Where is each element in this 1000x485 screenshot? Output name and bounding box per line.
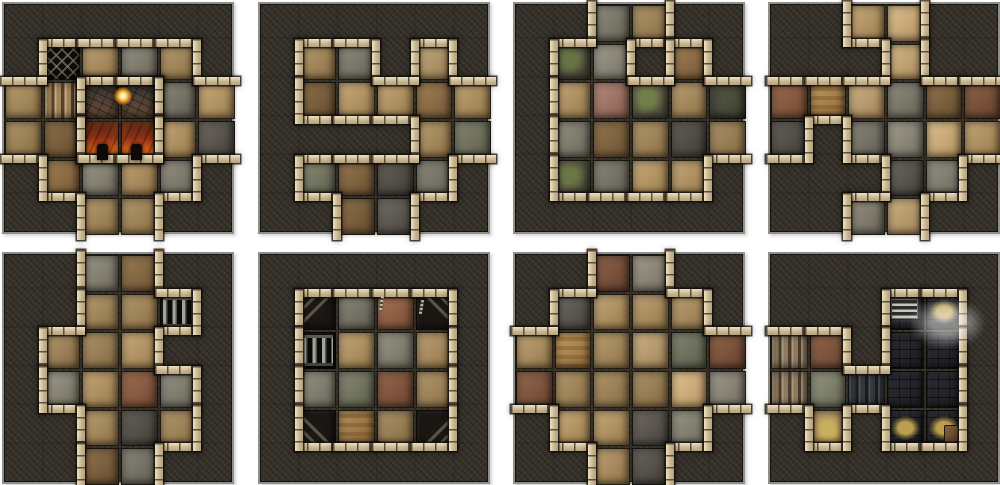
dungeon-wall-segment: [959, 405, 967, 452]
dark-gray-floor: [377, 198, 414, 235]
door-icon: [97, 144, 108, 160]
tan-stone-floor: [555, 82, 592, 119]
brown-floor: [121, 255, 158, 292]
gray-floor: [555, 121, 592, 158]
red-brown-floor: [516, 371, 553, 408]
brown-floor: [593, 121, 630, 158]
dark-gray-floor: [377, 160, 414, 197]
gray-green-floor: [300, 160, 337, 197]
tan-stone-floor: [632, 5, 669, 42]
mossy-floor: [555, 160, 592, 197]
gray-floor: [160, 371, 197, 408]
light-tan-floor: [926, 121, 963, 158]
tan-stone-floor: [82, 294, 119, 331]
pink-stone-floor: [593, 82, 630, 119]
tan-stone-floor: [709, 121, 746, 158]
gray-floor: [593, 5, 630, 42]
tile-crossroads: [768, 2, 1000, 234]
corner-chevron-steps: [416, 410, 453, 447]
gray-floor: [338, 294, 375, 331]
tan-stone-floor: [44, 332, 81, 369]
dungeon-wall-segment: [704, 77, 751, 85]
tile-barred-cell-corridor: [2, 252, 234, 484]
brown-floor: [44, 121, 81, 158]
tile-sealed-prison-room: [258, 252, 490, 484]
dark-gray-floor: [771, 121, 808, 158]
tan-stone-floor: [5, 121, 42, 158]
tan-stone-floor: [555, 371, 592, 408]
red-brown-floor: [709, 332, 746, 369]
stone-stairs: [771, 371, 808, 408]
red-brown-floor: [377, 371, 414, 408]
tan-stone-floor: [593, 410, 630, 447]
red-brown-floor: [593, 255, 630, 292]
brown-floor: [416, 82, 453, 119]
tile-overgrown-hall: [513, 2, 745, 234]
tan-stone-floor: [377, 410, 414, 447]
tan-stone-floor: [338, 332, 375, 369]
dungeon-wall-segment: [449, 155, 457, 202]
tan-stone-floor: [82, 371, 119, 408]
tan-stone-floor: [377, 82, 414, 119]
dungeon-wall-segment: [295, 155, 303, 202]
dungeon-wall-segment: [550, 155, 558, 202]
dungeon-wall-segment: [959, 155, 967, 202]
tan-stone-floor: [160, 121, 197, 158]
tan-stone-floor: [632, 121, 669, 158]
portcullis-cell: [160, 294, 197, 331]
tan-stone-floor: [632, 160, 669, 197]
dungeon-wall-segment: [704, 155, 712, 202]
dungeon-wall-segment: [959, 77, 1000, 85]
light-tan-floor: [887, 44, 924, 81]
red-brown-floor: [771, 82, 808, 119]
gray-green-floor: [671, 332, 708, 369]
tan-stone-floor: [454, 82, 491, 119]
brown-floor: [300, 82, 337, 119]
dungeon-wall-segment: [882, 405, 890, 452]
barred-grate-cell: [300, 332, 337, 369]
gray-floor: [848, 121, 885, 158]
tan-stone-floor: [632, 371, 669, 408]
gray-floor: [926, 160, 963, 197]
dungeon-wall-segment: [805, 116, 813, 163]
tan-stone-floor: [160, 44, 197, 81]
dark-gray-floor: [121, 410, 158, 447]
scorched-floor: [82, 82, 119, 119]
tan-stone-floor: [593, 448, 630, 485]
tile-furnace-room: [2, 2, 234, 234]
dungeon-wall-segment: [843, 77, 890, 85]
tan-stone-floor: [82, 332, 119, 369]
light-tan-floor: [632, 332, 669, 369]
gray-floor: [709, 371, 746, 408]
dungeon-wall-segment: [666, 443, 674, 485]
tile-great-hall: [513, 252, 745, 484]
gray-floor: [82, 255, 119, 292]
banded-orange-floor: [810, 82, 847, 119]
tan-stone-floor: [964, 121, 1000, 158]
dungeon-tile-sheet: [0, 0, 1000, 485]
dungeon-wall-segment: [449, 405, 457, 452]
tan-stone-floor: [121, 160, 158, 197]
dark-gray-floor: [632, 448, 669, 485]
tile-dark-cellar: [768, 252, 1000, 484]
dark-cellar-floor: [887, 371, 924, 408]
dungeon-wall-segment: [921, 193, 929, 240]
gray-green-floor: [338, 371, 375, 408]
dungeon-wall-segment: [155, 443, 163, 485]
dark-gray-floor: [632, 410, 669, 447]
dungeon-wall-segment: [193, 289, 201, 336]
dungeon-wall-segment: [333, 193, 341, 240]
tan-stone-floor: [82, 410, 119, 447]
dungeon-wall-segment: [372, 77, 419, 85]
gray-floor: [377, 332, 414, 369]
red-brown-floor: [810, 332, 847, 369]
hay-on-dark-floor: [887, 410, 924, 447]
dungeon-wall-segment: [805, 405, 813, 452]
gray-floor: [160, 82, 197, 119]
dungeon-wall-segment: [704, 327, 751, 335]
gray-floor: [887, 82, 924, 119]
light-tan-floor: [848, 82, 885, 119]
dark-gray-floor: [671, 121, 708, 158]
stone-stairs: [771, 332, 808, 369]
tan-stone-floor: [671, 160, 708, 197]
tan-stone-floor: [632, 294, 669, 331]
tan-stone-floor: [848, 5, 885, 42]
tan-stone-floor: [198, 82, 235, 119]
gray-floor: [300, 371, 337, 408]
dungeon-wall-segment: [295, 77, 303, 124]
gray-floor: [671, 410, 708, 447]
dungeon-wall-segment: [843, 405, 851, 452]
gray-floor: [848, 198, 885, 235]
tan-stone-floor: [416, 371, 453, 408]
light-tan-floor: [671, 371, 708, 408]
tan-stone-floor: [593, 294, 630, 331]
dungeon-wall-segment: [449, 77, 496, 85]
red-brown-floor: [121, 371, 158, 408]
dungeon-wall-segment: [193, 77, 240, 85]
corner-chevron-steps: [300, 410, 337, 447]
dungeon-wall-segment: [411, 193, 419, 240]
hay-and-crate: [926, 410, 963, 447]
dungeon-wall-segment: [843, 366, 890, 374]
light-tan-floor: [416, 44, 453, 81]
brown-floor: [338, 198, 375, 235]
torch-icon: [114, 87, 132, 105]
mossy-floor: [632, 82, 669, 119]
mist-icon: [909, 298, 985, 348]
gray-floor: [121, 44, 158, 81]
gray-floor: [887, 121, 924, 158]
tan-stone-floor: [416, 121, 453, 158]
hay-on-tan-floor: [810, 410, 847, 447]
dungeon-wall-segment: [843, 116, 851, 163]
banded-orange-floor: [555, 332, 592, 369]
dungeon-wall-segment: [550, 405, 558, 452]
tan-stone-floor: [82, 44, 119, 81]
gray-floor: [160, 160, 197, 197]
dark-cellar-floor: [926, 371, 963, 408]
tan-stone-floor: [671, 294, 708, 331]
dark-cobble-floor: [709, 82, 746, 119]
gray-floor: [82, 160, 119, 197]
tan-stone-floor: [5, 82, 42, 119]
tan-stone-floor: [593, 371, 630, 408]
gray-green-floor: [810, 371, 847, 408]
gray-floor: [121, 448, 158, 485]
dungeon-wall-segment: [511, 327, 558, 335]
tan-stone-floor: [160, 410, 197, 447]
tan-stone-floor: [416, 332, 453, 369]
door-icon: [131, 144, 142, 160]
light-tan-floor: [887, 198, 924, 235]
tile-winding-corridors: [258, 2, 490, 234]
dungeon-wall-segment: [39, 366, 47, 413]
dungeon-wall-segment: [39, 155, 47, 202]
dungeon-wall-segment: [0, 77, 47, 85]
dark-gray-floor: [555, 294, 592, 331]
dungeon-wall-segment: [155, 193, 163, 240]
brown-floor: [338, 160, 375, 197]
dungeon-wall-segment: [627, 77, 674, 85]
dungeon-wall-segment: [193, 405, 201, 452]
dungeon-wall-segment: [193, 155, 201, 202]
dungeon-wall-segment: [843, 0, 851, 47]
mossy-floor: [555, 44, 592, 81]
gray-floor: [416, 160, 453, 197]
brown-floor: [44, 160, 81, 197]
brown-floor: [671, 44, 708, 81]
stairs: [44, 82, 81, 119]
gray-floor: [593, 44, 630, 81]
gray-floor: [632, 255, 669, 292]
dungeon-wall-segment: [704, 405, 712, 452]
red-brown-floor: [964, 82, 1000, 119]
tan-stone-floor: [593, 332, 630, 369]
light-tan-floor: [887, 5, 924, 42]
dungeon-wall-segment: [77, 193, 85, 240]
tan-stone-floor: [121, 198, 158, 235]
gray-floor: [338, 44, 375, 81]
lattice-grate-pit: [44, 44, 81, 81]
dark-gray-floor: [198, 121, 235, 158]
tan-stone-floor: [671, 82, 708, 119]
gray-floor: [44, 371, 81, 408]
tan-stone-floor: [516, 332, 553, 369]
tan-stone-floor: [121, 332, 158, 369]
dungeon-wall-segment: [843, 193, 851, 240]
brown-floor: [926, 82, 963, 119]
dark-gray-floor: [887, 160, 924, 197]
brown-floor: [82, 448, 119, 485]
dark-steps-passage: [848, 371, 885, 408]
tan-stone-floor: [121, 294, 158, 331]
tan-stone-floor: [555, 410, 592, 447]
dungeon-wall-segment: [588, 443, 596, 485]
dungeon-wall-segment: [77, 443, 85, 485]
tan-stone-floor: [82, 198, 119, 235]
gray-green-floor: [454, 121, 491, 158]
gray-floor: [593, 160, 630, 197]
tan-stone-floor: [338, 82, 375, 119]
dungeon-wall-segment: [295, 405, 303, 452]
tan-stone-floor: [300, 44, 337, 81]
dungeon-wall-segment: [372, 155, 419, 163]
banded-orange-floor: [338, 410, 375, 447]
corner-chevron-steps: [300, 294, 337, 331]
